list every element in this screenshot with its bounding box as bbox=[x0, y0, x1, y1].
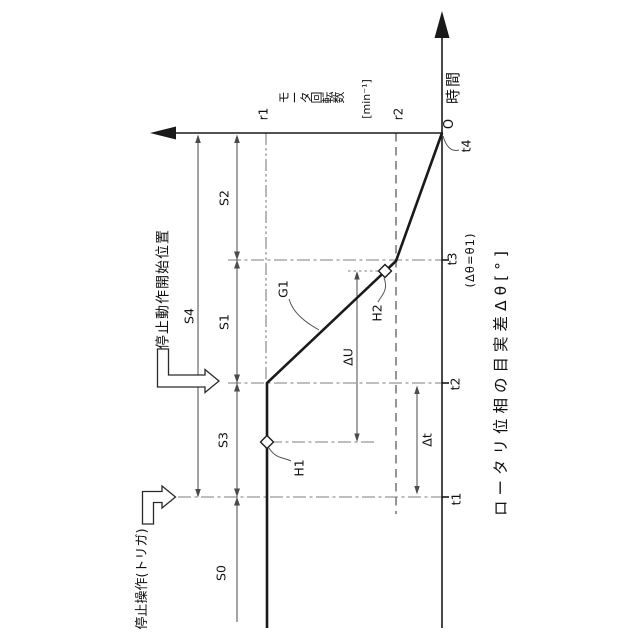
marker-h2-label: H2 bbox=[370, 304, 383, 321]
segment-dimension bbox=[234, 135, 240, 623]
trigger-annotation: 停止操作(トリガ) bbox=[136, 528, 150, 629]
tick-t4: t4 bbox=[459, 140, 472, 153]
patent-figure: 時間 O t4 t3 (Δθ=θ1) t2 t1 モータ回転数 [min⁻¹] … bbox=[0, 0, 640, 640]
speed-axis-label: モータ回転数 bbox=[278, 90, 344, 107]
h1-diamond-marker bbox=[261, 436, 274, 449]
g1-leader bbox=[289, 299, 319, 330]
tick-t1: t1 bbox=[449, 493, 462, 506]
segment-s1: S1 bbox=[217, 314, 230, 330]
delta-u-label: ΔU bbox=[341, 348, 354, 366]
t4-leader bbox=[443, 136, 459, 150]
time-axis-label: 時間 bbox=[446, 70, 462, 104]
speed-axis bbox=[150, 127, 443, 140]
h2-leader bbox=[378, 278, 386, 302]
segment-s3: S3 bbox=[216, 432, 229, 448]
segment-s2: S2 bbox=[217, 190, 230, 206]
tick-t2: t2 bbox=[448, 378, 461, 391]
level-r2: r2 bbox=[393, 108, 406, 121]
marker-g1-label: G1 bbox=[276, 280, 289, 298]
trigger-block-arrow bbox=[143, 486, 176, 524]
speed-axis-unit: [min⁻¹] bbox=[361, 79, 373, 119]
h1-leader bbox=[269, 448, 291, 461]
speed-curve bbox=[267, 133, 442, 628]
stop-start-annotation: 停止動作開始位置 bbox=[157, 229, 172, 349]
origin-label: O bbox=[443, 119, 457, 129]
phase-axis-label: ロータリ位相の目実差Δθ[°] bbox=[493, 246, 509, 516]
tick-t3: t3 bbox=[445, 253, 458, 266]
t3-condition-note: (Δθ=θ1) bbox=[464, 233, 476, 288]
level-r1: r1 bbox=[258, 108, 271, 121]
segment-s4: S4 bbox=[182, 308, 195, 324]
marker-h1-label: H1 bbox=[292, 459, 305, 476]
stop-start-block-arrow bbox=[158, 349, 220, 393]
segment-s0: S0 bbox=[214, 565, 227, 581]
delta-t-label: Δt bbox=[420, 433, 433, 446]
